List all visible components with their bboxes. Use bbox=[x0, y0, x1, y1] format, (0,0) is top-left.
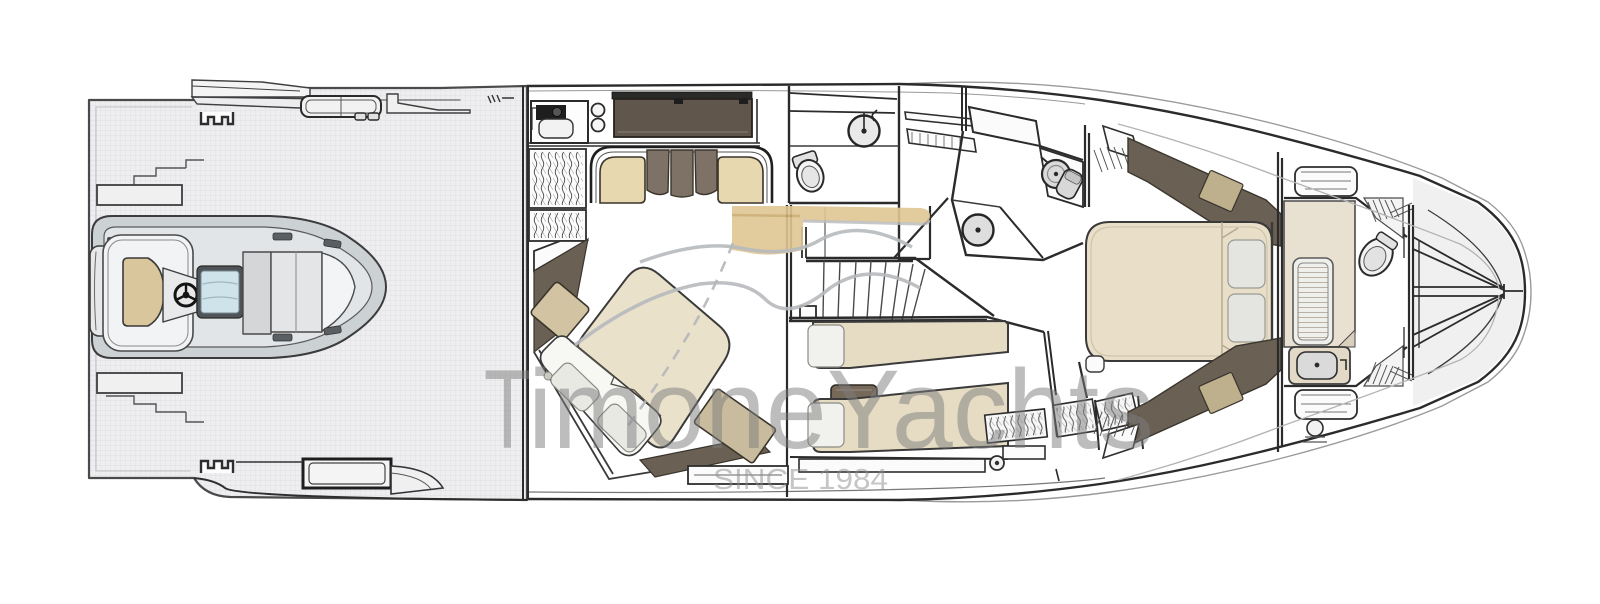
svg-text:TimoneYachts: TimoneYachts bbox=[484, 347, 1154, 472]
svg-text:SINCE 1984: SINCE 1984 bbox=[713, 464, 888, 496]
